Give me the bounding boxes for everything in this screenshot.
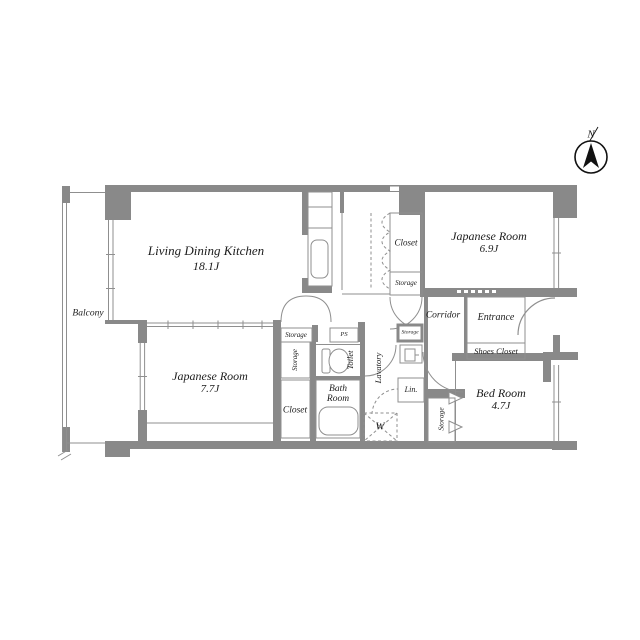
room-label-entrance: Entrance (478, 312, 515, 324)
room-label-corridor: Corridor (426, 310, 460, 321)
bathtub-icon (319, 407, 358, 435)
room-label-storage-mid: Storage (285, 331, 307, 339)
ps-door-arc (306, 296, 331, 322)
room-label-ldk: Living Dining Kitchen 18.1J (148, 243, 264, 273)
room-size: 6.9J (451, 244, 527, 257)
room-label-balcony: Balcony (72, 308, 103, 319)
room-label-shoes-closet: Shoes Closet (474, 346, 518, 356)
washer-space-dashed-arc (372, 389, 398, 414)
meter-panel-icon (400, 345, 422, 363)
floor-plan-drawing (0, 0, 640, 640)
room-name: Bed Room (476, 386, 526, 400)
floor-plan: Living Dining Kitchen 18.1J Japanese Roo… (0, 0, 640, 640)
room-label-storage-bedroom: Storage (437, 407, 446, 430)
room-name: Japanese Room (172, 369, 248, 383)
room-label-ps: PS (340, 331, 347, 339)
room-label-closet-south: Closet (283, 405, 307, 416)
room-label-storage-corridor: Storage (401, 330, 418, 337)
entrance-door-arc (518, 298, 555, 335)
room-label-closet-north: Closet (394, 238, 417, 249)
room-size: 7.7J (172, 384, 248, 397)
room-label-linen: Lin. (405, 385, 418, 395)
room-size: 4.7J (476, 401, 526, 414)
compass-north-label: N (587, 128, 594, 141)
room-label-bath-room: Bath Room (319, 385, 357, 405)
room-name: Japanese Room (451, 229, 527, 243)
room-name: Living Dining Kitchen (148, 243, 264, 259)
room-size: 18.1J (148, 259, 264, 273)
room-label-storage-west: Storage (291, 349, 299, 371)
room-label-storage-north: Storage (395, 279, 417, 287)
kitchen-counter-icon (308, 192, 332, 286)
room-label-japanese-room-west: Japanese Room 7.7J (172, 369, 248, 397)
storage-door-arc (281, 296, 306, 322)
room-label-washer: W (375, 420, 384, 433)
room-label-lavatory: Lavatory (373, 353, 383, 384)
room-label-toilet: Toilet (345, 350, 355, 369)
closet-bifold-doors (382, 213, 390, 289)
room-label-japanese-room-east: Japanese Room 6.9J (451, 229, 527, 257)
room-label-bed-room: Bed Room 4.7J (476, 386, 526, 414)
